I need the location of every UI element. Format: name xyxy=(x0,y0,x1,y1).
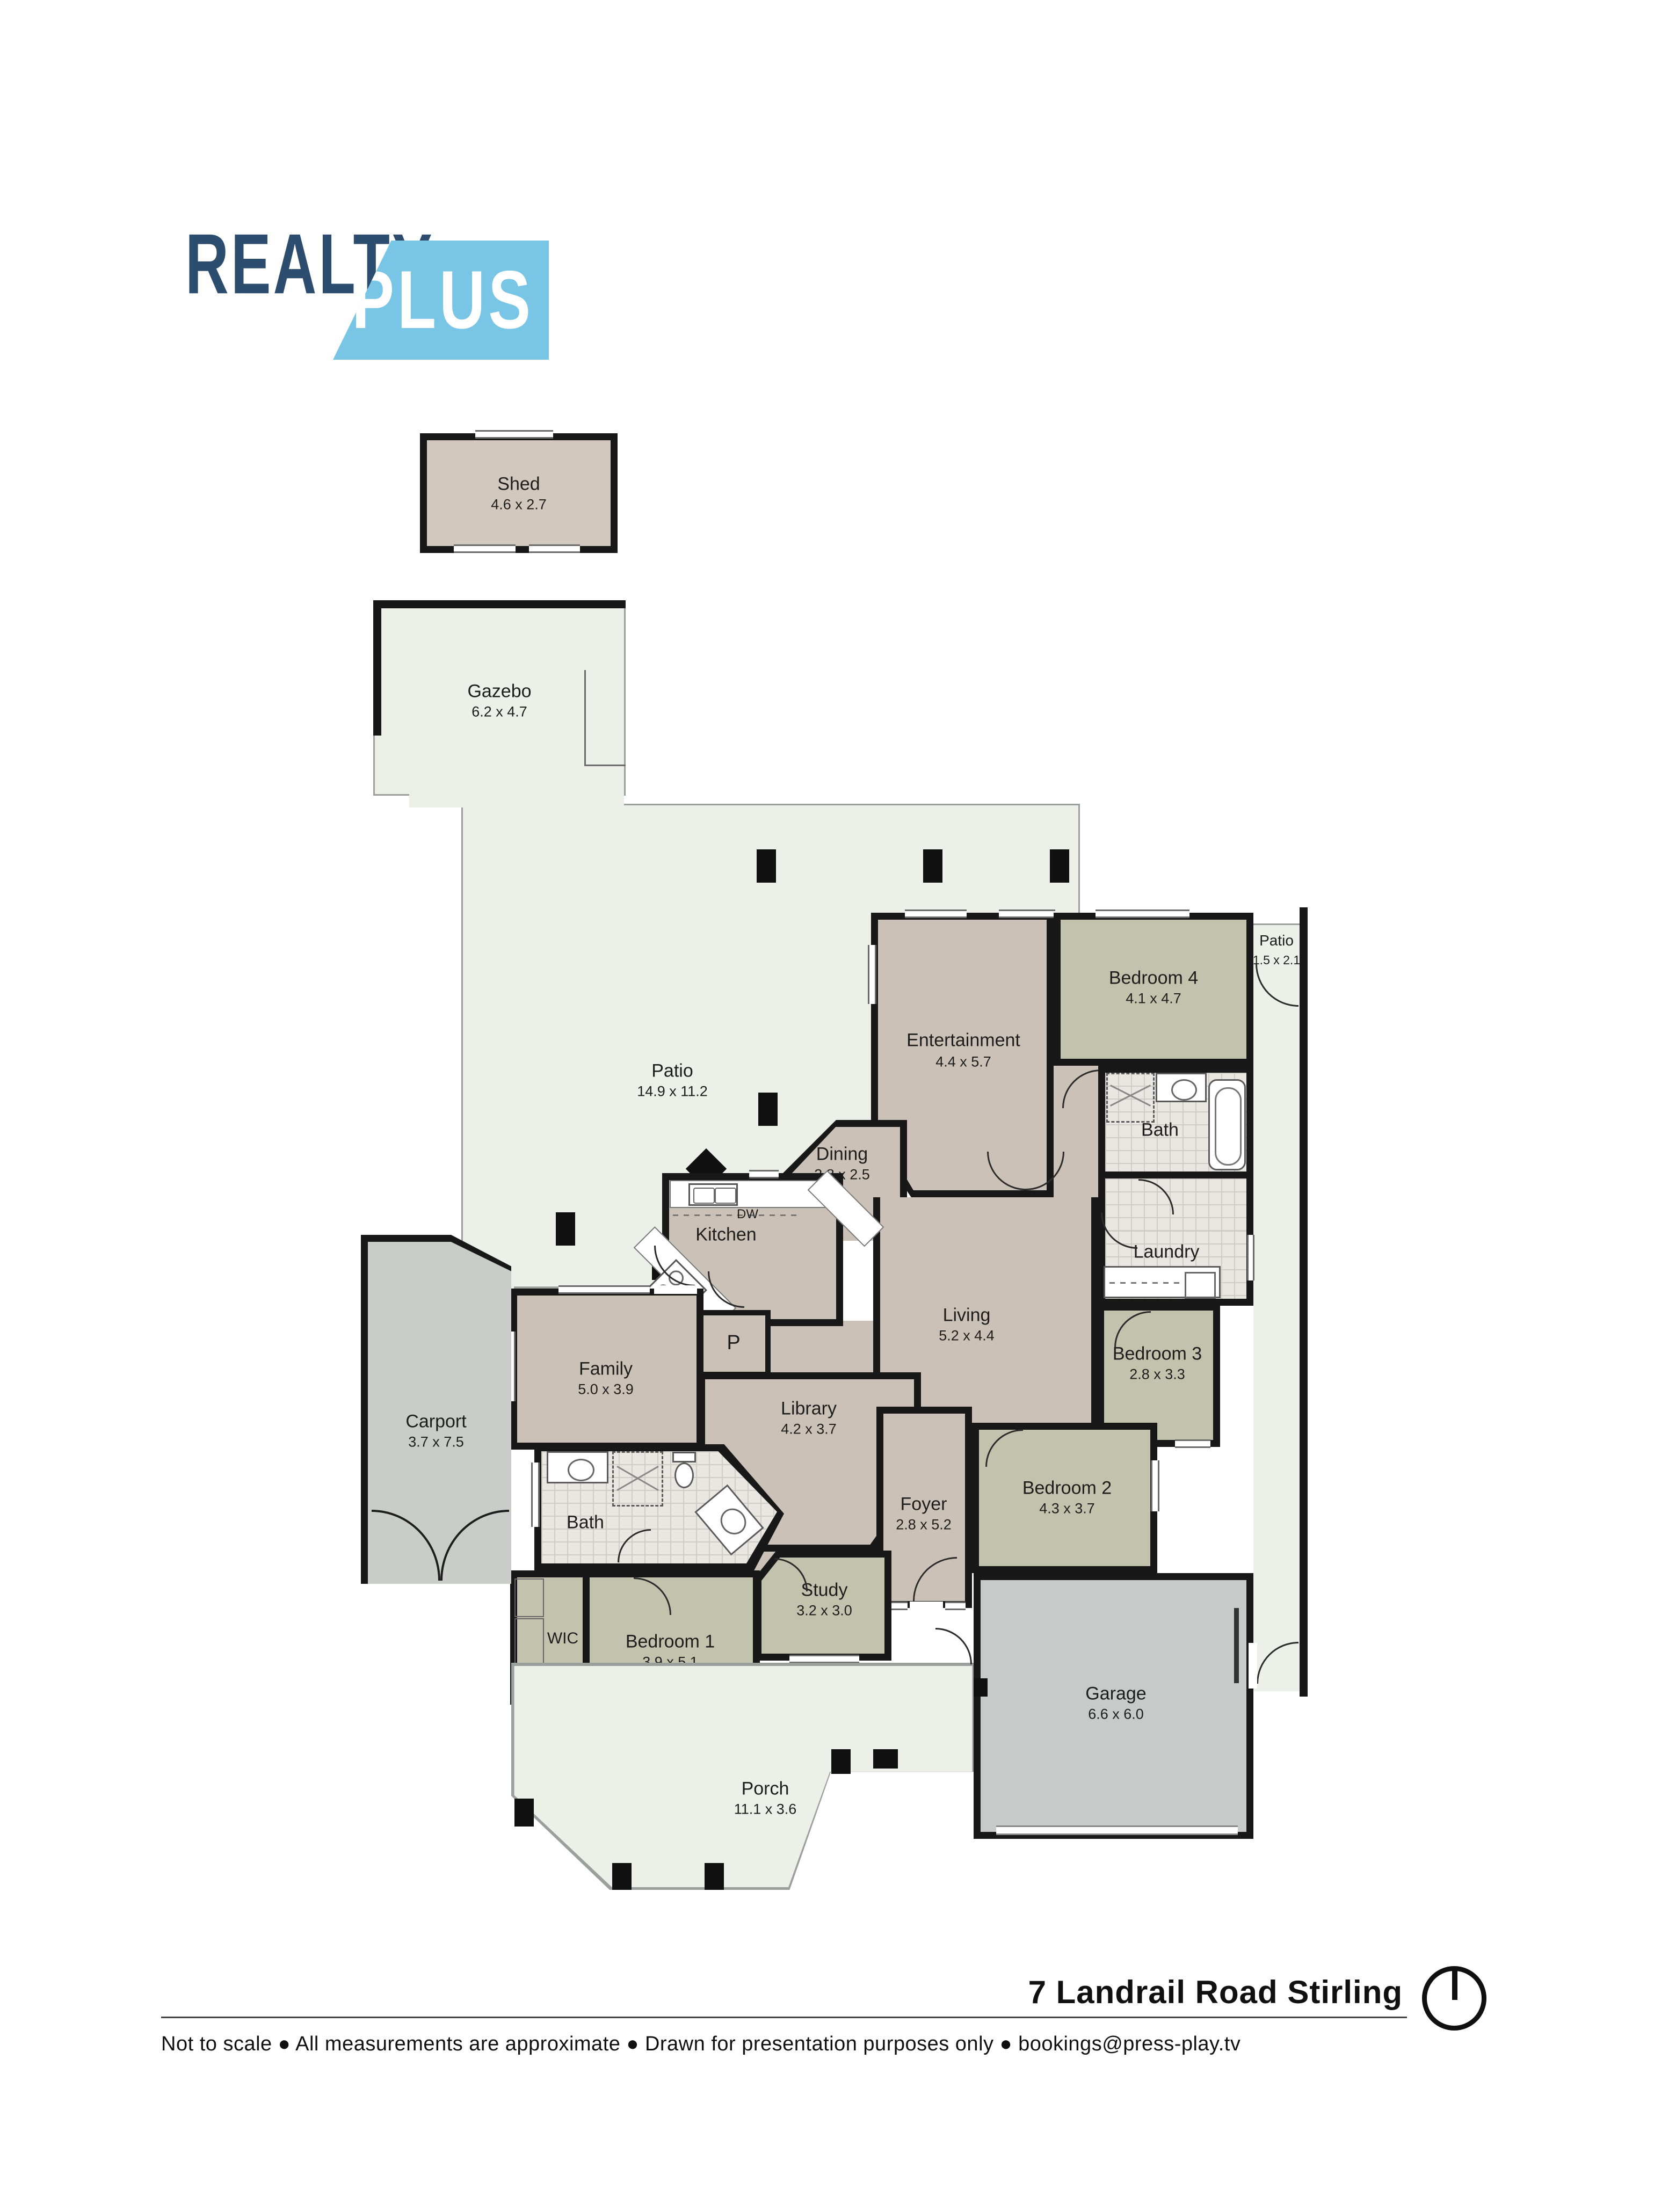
porch-post xyxy=(873,1749,898,1769)
shed-window xyxy=(454,544,516,553)
patio-post xyxy=(556,1212,575,1246)
room-patio-side xyxy=(1253,923,1300,1691)
window xyxy=(945,1602,966,1610)
window xyxy=(1151,1460,1159,1511)
shed-label: Shed xyxy=(497,474,540,494)
foyer-dims: 2.8 x 5.2 xyxy=(896,1516,952,1533)
bedroom2-label: Bedroom 2 xyxy=(1022,1478,1112,1498)
gazebo-wall xyxy=(373,600,381,736)
bath-ensuite-label: Bath xyxy=(1141,1119,1179,1140)
study-label: Study xyxy=(801,1580,848,1600)
porch-post xyxy=(514,1799,534,1827)
family-door-gap xyxy=(654,1285,697,1294)
patio-post xyxy=(923,849,942,883)
carport-label: Carport xyxy=(405,1411,466,1432)
gazebo-inner-line xyxy=(584,670,586,766)
family-dims: 5.0 x 3.9 xyxy=(578,1381,634,1398)
window xyxy=(1175,1439,1210,1448)
garage-door xyxy=(996,1825,1238,1835)
dishwasher-label: DW xyxy=(737,1207,758,1222)
toilet-icon xyxy=(672,1452,696,1462)
sink-icon xyxy=(688,1183,738,1206)
family-label: Family xyxy=(579,1358,633,1379)
window xyxy=(999,909,1055,918)
window xyxy=(868,945,876,1004)
garage-internal-wall xyxy=(1234,1608,1239,1683)
shower xyxy=(1106,1073,1155,1123)
footer-divider xyxy=(161,2017,1407,2018)
window xyxy=(789,1655,859,1663)
porch-post xyxy=(612,1863,632,1890)
porch-label: Porch xyxy=(742,1778,789,1799)
garage-side-door-gap xyxy=(1249,1643,1257,1689)
vanity-sink xyxy=(1156,1073,1207,1102)
bedroom4-label: Bedroom 4 xyxy=(1109,967,1198,988)
wic-label: WIC xyxy=(547,1629,578,1648)
gazebo-patio-connector xyxy=(409,794,624,807)
bedroom1-label: Bedroom 1 xyxy=(626,1631,715,1652)
porch-post xyxy=(705,1863,724,1890)
address-title: 7 Landrail Road Stirling xyxy=(1028,1974,1403,2011)
toilet-icon xyxy=(674,1462,694,1488)
compass-icon xyxy=(1422,1966,1486,2031)
window xyxy=(558,1285,650,1294)
foyer-label: Foyer xyxy=(901,1494,947,1515)
patio-main-label: Patio xyxy=(651,1060,693,1081)
logo-plus-text: PLUS xyxy=(352,253,534,348)
gazebo-wall xyxy=(373,600,626,608)
garage-dims: 6.6 x 6.0 xyxy=(1088,1706,1144,1722)
kitchen-label: Kitchen xyxy=(695,1224,756,1245)
patio-post xyxy=(1050,849,1069,883)
dining-label: Dining xyxy=(816,1144,868,1165)
entertainment-label: Entertainment xyxy=(906,1030,1020,1051)
shed-dims: 4.6 x 2.7 xyxy=(491,496,547,513)
door-arc xyxy=(935,1628,972,1664)
front-door-gap xyxy=(910,1602,943,1610)
gazebo-dims: 6.2 x 4.7 xyxy=(471,703,527,720)
wardrobe-shelf xyxy=(514,1618,544,1668)
carport-dims: 3.7 x 7.5 xyxy=(408,1434,464,1450)
laundry-bench xyxy=(1104,1266,1221,1298)
shower xyxy=(612,1451,663,1507)
footer-disclaimer: Not to scale ● All measurements are appr… xyxy=(161,2033,1240,2056)
shed-window xyxy=(529,544,580,553)
patio-post xyxy=(758,1093,778,1126)
bedroom3-dims: 2.8 x 3.3 xyxy=(1129,1366,1185,1382)
window xyxy=(531,1462,540,1527)
bedroom2-dims: 4.3 x 3.7 xyxy=(1039,1500,1095,1517)
library-label: Library xyxy=(781,1398,837,1419)
pantry-label: P xyxy=(727,1331,740,1355)
room-bedroom4 xyxy=(1054,913,1253,1066)
porch-dims: 11.1 x 3.6 xyxy=(734,1801,797,1817)
floorplan-page: REALTY PLUS Shed 4.6 x 2.7 Gazebo 6.2 x … xyxy=(0,0,1654,2212)
study-dims: 3.2 x 3.0 xyxy=(796,1602,852,1619)
patio-main-dims: 14.9 x 11.2 xyxy=(637,1083,708,1100)
boundary-wall xyxy=(1300,907,1308,1697)
window xyxy=(905,909,967,918)
window xyxy=(1096,909,1189,918)
window xyxy=(1247,1235,1254,1280)
library-dims: 4.2 x 3.7 xyxy=(781,1421,837,1437)
porch-post xyxy=(831,1749,851,1774)
living-label: Living xyxy=(943,1305,991,1326)
vanity-sink xyxy=(547,1451,608,1483)
gazebo-label: Gazebo xyxy=(467,681,531,702)
wardrobe-shelf xyxy=(514,1578,544,1617)
laundry-label: Laundry xyxy=(1134,1241,1200,1262)
patio-post xyxy=(757,849,776,883)
bedroom4-dims: 4.1 x 4.7 xyxy=(1126,990,1181,1007)
gazebo-inner-line xyxy=(584,765,626,766)
bathtub-icon xyxy=(1208,1079,1246,1170)
patio-side-label: Patio xyxy=(1259,932,1294,949)
entertainment-dims: 4.4 x 5.7 xyxy=(935,1053,991,1070)
room-porch xyxy=(513,1664,974,1890)
garage-wall-nib xyxy=(974,1678,988,1697)
bath-main-label: Bath xyxy=(567,1512,604,1533)
shed-window xyxy=(475,430,553,439)
garage-label: Garage xyxy=(1085,1683,1146,1704)
window xyxy=(749,1170,779,1178)
living-dims: 5.2 x 4.4 xyxy=(939,1327,995,1344)
